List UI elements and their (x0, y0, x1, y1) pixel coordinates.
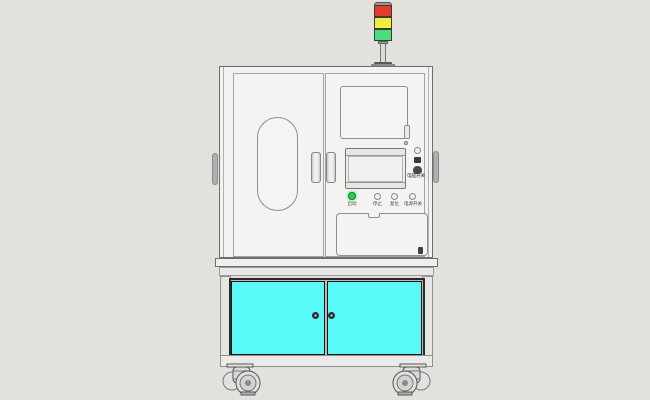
frame-post-right-line (428, 67, 429, 257)
monitor-bottom-bezel (346, 182, 405, 188)
stop-button[interactable] (374, 193, 381, 200)
tray-notch (368, 213, 380, 218)
left-door-window (257, 117, 298, 211)
reset-button[interactable] (391, 193, 398, 200)
hmi-screen[interactable] (348, 156, 403, 182)
caster-wheel-left (221, 361, 271, 397)
start-button[interactable] (348, 192, 356, 200)
sub-rail (219, 267, 434, 276)
usb-port[interactable] (414, 157, 421, 163)
center-door-handle-right[interactable] (326, 152, 336, 183)
upper-window-handle[interactable] (404, 125, 410, 139)
caster-wheel-right (382, 361, 432, 397)
keyboard-tray-panel (336, 213, 428, 256)
power-cluster-label: 电脑开关 (404, 174, 428, 179)
frame-post-left-line (223, 67, 224, 257)
right-side-handle[interactable] (433, 151, 439, 183)
cabinet-door-knob-left[interactable] (312, 312, 319, 319)
start-button-label: 启动 (342, 202, 362, 207)
tower-light-yellow-segment (374, 17, 392, 29)
key-switch[interactable] (413, 166, 422, 174)
power-button[interactable] (409, 193, 416, 200)
indicator-lamp (414, 147, 421, 154)
tower-light-green-segment (374, 29, 392, 41)
left-side-handle[interactable] (212, 153, 218, 185)
cabinet-door-right[interactable] (327, 281, 422, 355)
tower-light-red-segment (374, 5, 392, 17)
cabinet-door-knob-right[interactable] (328, 312, 335, 319)
machine-render: 电脑开关 启动 停止 复位 电源开关 (0, 0, 650, 400)
tray-handle[interactable] (418, 247, 423, 254)
monitor-top-bezel (346, 149, 405, 156)
center-door-handle-left[interactable] (311, 152, 321, 183)
table-top-rail (215, 258, 438, 267)
tower-light-pole (380, 44, 386, 63)
hmi-monitor (345, 148, 406, 189)
power-button-label: 电源开关 (402, 202, 424, 207)
cabinet-door-left[interactable] (231, 281, 325, 355)
upper-window-latch-dot (404, 141, 408, 145)
upper-right-window (340, 86, 408, 139)
